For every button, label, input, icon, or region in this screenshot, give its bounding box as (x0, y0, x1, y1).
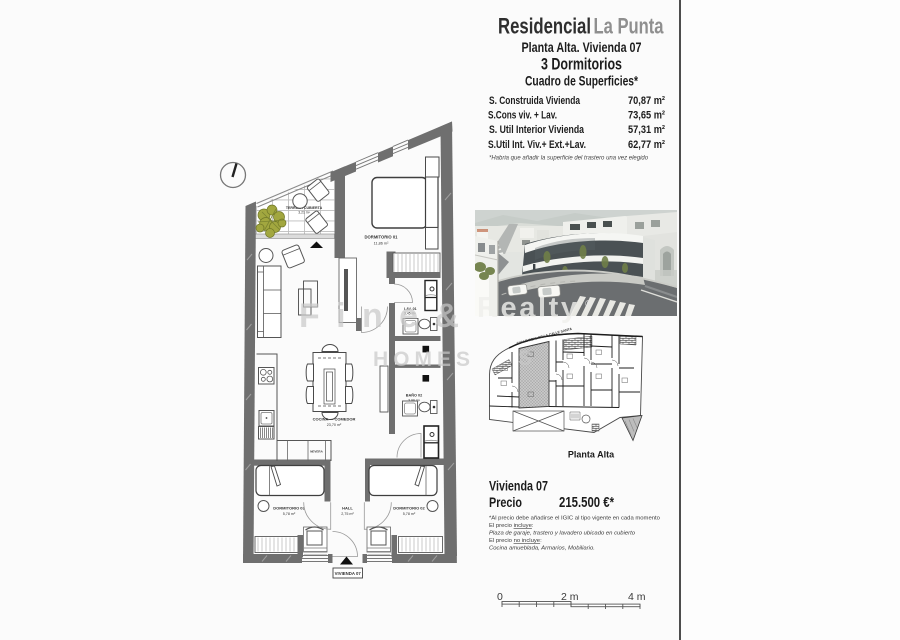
svg-text:DORMITORIO 02: DORMITORIO 02 (393, 506, 425, 511)
svg-text:2,75 m²: 2,75 m² (341, 512, 354, 516)
svg-text:NEVERA: NEVERA (310, 450, 323, 454)
svg-text:2 m: 2 m (561, 591, 579, 603)
svg-text:S.Util Int. Viv.+ Ext.+Lav.: S.Util Int. Viv.+ Ext.+Lav. (488, 139, 586, 151)
svg-text:3 Dormitorios: 3 Dormitorios (541, 56, 622, 74)
svg-text:®: ® (585, 299, 593, 310)
svg-text:11,86 m²: 11,86 m² (374, 242, 389, 246)
svg-text:*Al precio debe añadirse el IG: *Al precio debe añadirse el IGIC al tipo… (489, 516, 661, 522)
svg-text:S. Util Interior Vivienda: S. Util Interior Vivienda (489, 124, 585, 136)
svg-text:La Punta: La Punta (594, 14, 664, 39)
svg-text:57,31 m²: 57,31 m² (628, 124, 665, 136)
svg-text:*Habria que añadir la superfic: *Habria que añadir la superficie del tra… (489, 156, 649, 162)
svg-text:5,78 m²: 5,78 m² (283, 512, 296, 516)
svg-text:23,70 m²: 23,70 m² (327, 423, 342, 427)
svg-text:4 m: 4 m (628, 591, 646, 603)
svg-text:62,77 m²: 62,77 m² (628, 139, 665, 151)
svg-text:70,87 m²: 70,87 m² (628, 95, 665, 107)
svg-text:El precio incluye:: El precio incluye: (489, 523, 534, 529)
svg-text:215.500 €*: 215.500 €* (559, 495, 614, 511)
svg-text:DORMITORIO 01: DORMITORIO 01 (365, 235, 399, 240)
svg-text:Planta Alta. Vivienda 07: Planta Alta. Vivienda 07 (522, 40, 642, 55)
svg-text:DORMITORIO 03: DORMITORIO 03 (273, 506, 305, 511)
svg-text:HALL: HALL (342, 506, 353, 511)
svg-text:El precio no incluye:: El precio no incluye: (489, 538, 542, 544)
svg-text:Planta Alta: Planta Alta (568, 450, 615, 460)
svg-text:Realty: Realty (477, 292, 577, 324)
svg-text:BAÑO 02: BAÑO 02 (406, 393, 422, 398)
svg-text:73,65 m²: 73,65 m² (628, 110, 665, 122)
svg-text:Precio: Precio (489, 495, 522, 510)
svg-text:HOMES: HOMES (373, 348, 475, 371)
svg-text:COCINA — COMEDOR: COCINA — COMEDOR (313, 417, 356, 422)
svg-text:Plaza de garaje, trastero y la: Plaza de garaje, trastero y lavadero ubi… (489, 531, 636, 537)
svg-text:Cuadro de Superficies*: Cuadro de Superficies* (525, 73, 638, 89)
svg-text:0: 0 (497, 591, 503, 603)
svg-text:S.Cons viv. + Lav.: S.Cons viv. + Lav. (488, 110, 557, 122)
svg-text:VIVIENDA 07: VIVIENDA 07 (335, 571, 362, 576)
svg-text:S: S (518, 347, 532, 370)
svg-text:Residencial: Residencial (498, 14, 591, 39)
svg-text:Cocina amueblada, Armarios, Mo: Cocina amueblada, Armarios, Mobiliario. (489, 546, 595, 552)
svg-text:5,78 m²: 5,78 m² (403, 512, 416, 516)
svg-text:3,21 m²: 3,21 m² (298, 211, 310, 215)
svg-text:Vivienda 07: Vivienda 07 (489, 479, 548, 494)
svg-text:S. Construida Vivienda: S. Construida Vivienda (489, 95, 581, 107)
